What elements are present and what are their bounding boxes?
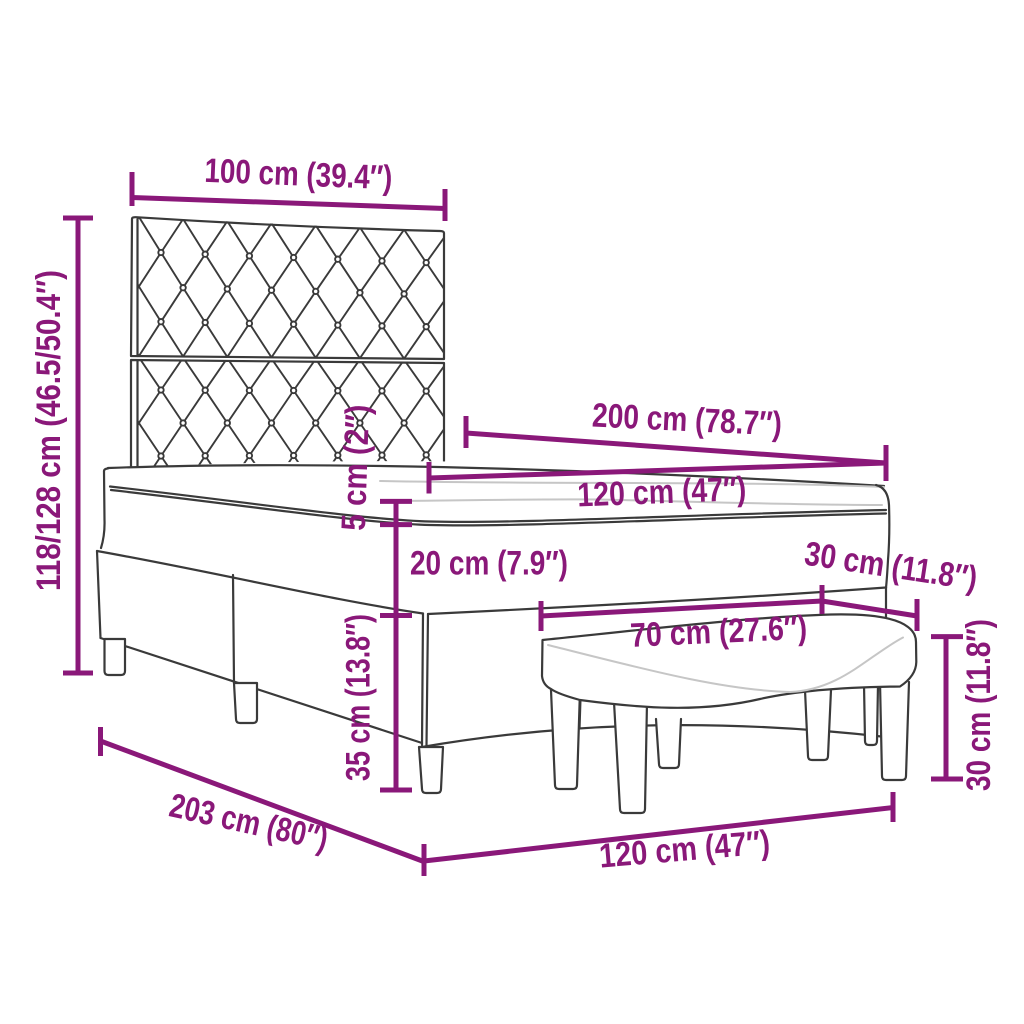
svg-text:70 cm (27.6″): 70 cm (27.6″) — [629, 609, 808, 655]
svg-text:118/128 cm (46.5/50.4″): 118/128 cm (46.5/50.4″) — [30, 270, 68, 591]
svg-text:30 cm (11.8″): 30 cm (11.8″) — [960, 619, 998, 791]
svg-text:20 cm (7.9″): 20 cm (7.9″) — [410, 544, 568, 582]
svg-text:120 cm (47″): 120 cm (47″) — [577, 470, 747, 514]
svg-text:5 cm (2″): 5 cm (2″) — [335, 404, 377, 531]
svg-text:100 cm (39.4″): 100 cm (39.4″) — [204, 152, 393, 198]
svg-text:35 cm (13.8″): 35 cm (13.8″) — [340, 614, 378, 781]
